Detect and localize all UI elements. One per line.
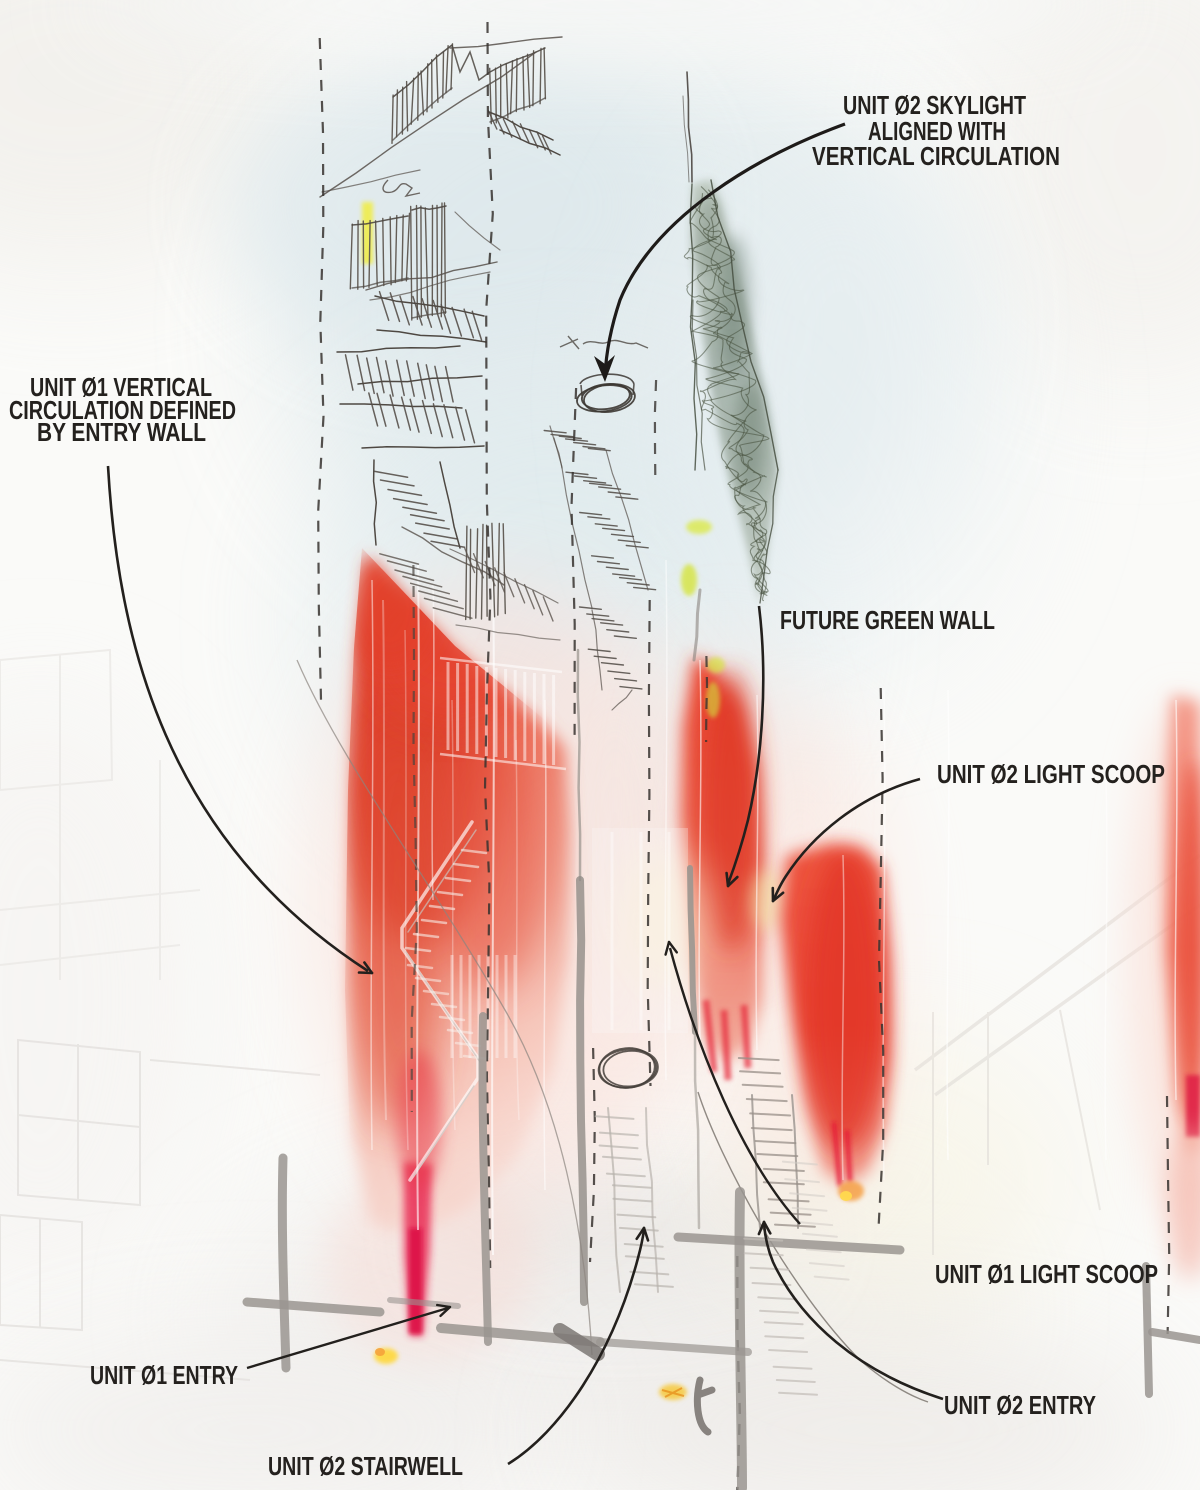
svg-text:UNIT Ø1 LIGHT SCOOP: UNIT Ø1 LIGHT SCOOP (935, 1259, 1158, 1289)
svg-text:UNIT Ø2 LIGHT SCOOP: UNIT Ø2 LIGHT SCOOP (937, 759, 1165, 789)
svg-text:VERTICAL CIRCULATION: VERTICAL CIRCULATION (812, 141, 1060, 171)
svg-text:BY ENTRY WALL: BY ENTRY WALL (37, 417, 206, 447)
svg-text:FUTURE GREEN WALL: FUTURE GREEN WALL (780, 605, 995, 635)
svg-text:UNIT Ø2 ENTRY: UNIT Ø2 ENTRY (944, 1390, 1096, 1420)
svg-text:UNIT Ø2 STAIRWELL: UNIT Ø2 STAIRWELL (268, 1451, 463, 1481)
svg-text:UNIT Ø1 ENTRY: UNIT Ø1 ENTRY (90, 1360, 238, 1390)
